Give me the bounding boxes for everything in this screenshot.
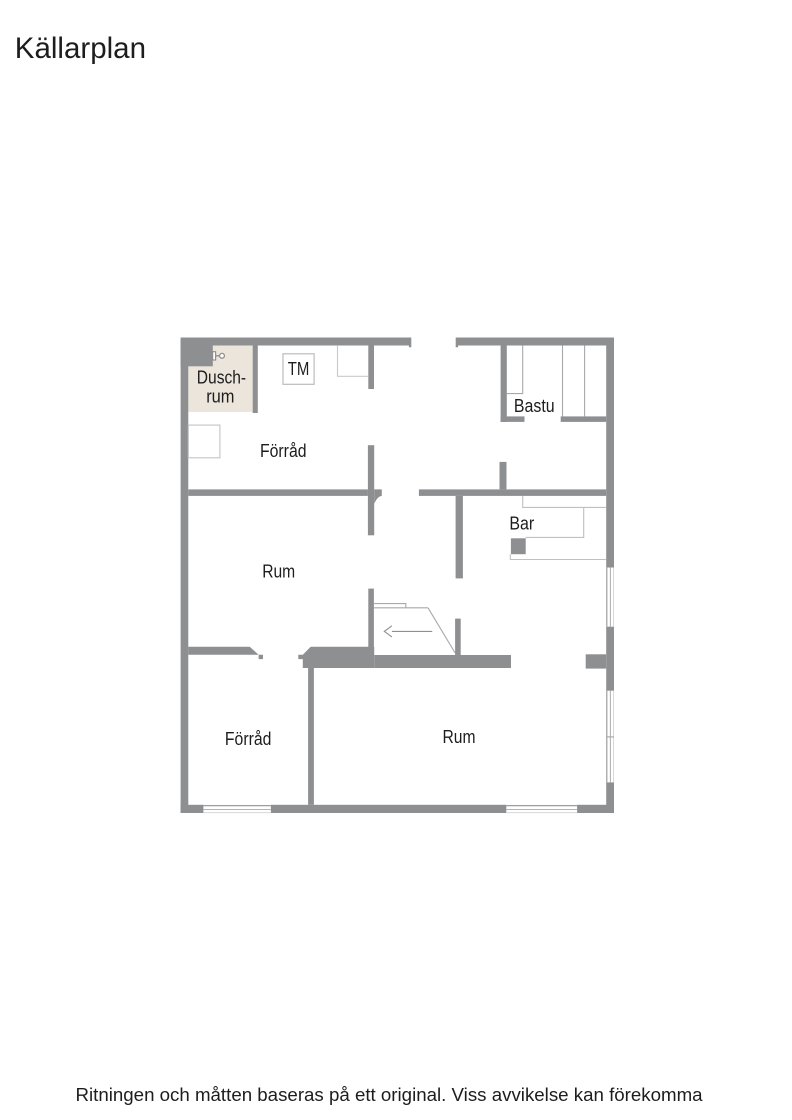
svg-text:Rum: Rum (443, 727, 476, 747)
svg-text:Rum: Rum (262, 561, 295, 581)
svg-text:Källarplan: Källarplan (15, 32, 146, 65)
svg-text:rum: rum (206, 387, 234, 407)
svg-text:Bar: Bar (509, 514, 534, 534)
svg-text:TM: TM (288, 359, 310, 379)
svg-text:Förråd: Förråd (260, 441, 307, 461)
svg-text:Förråd: Förråd (225, 729, 272, 749)
svg-text:Bastu: Bastu (514, 396, 555, 416)
svg-text:Ritningen och måtten baseras p: Ritningen och måtten baseras på ett orig… (76, 1084, 704, 1105)
svg-text:Dusch-: Dusch- (197, 368, 246, 388)
